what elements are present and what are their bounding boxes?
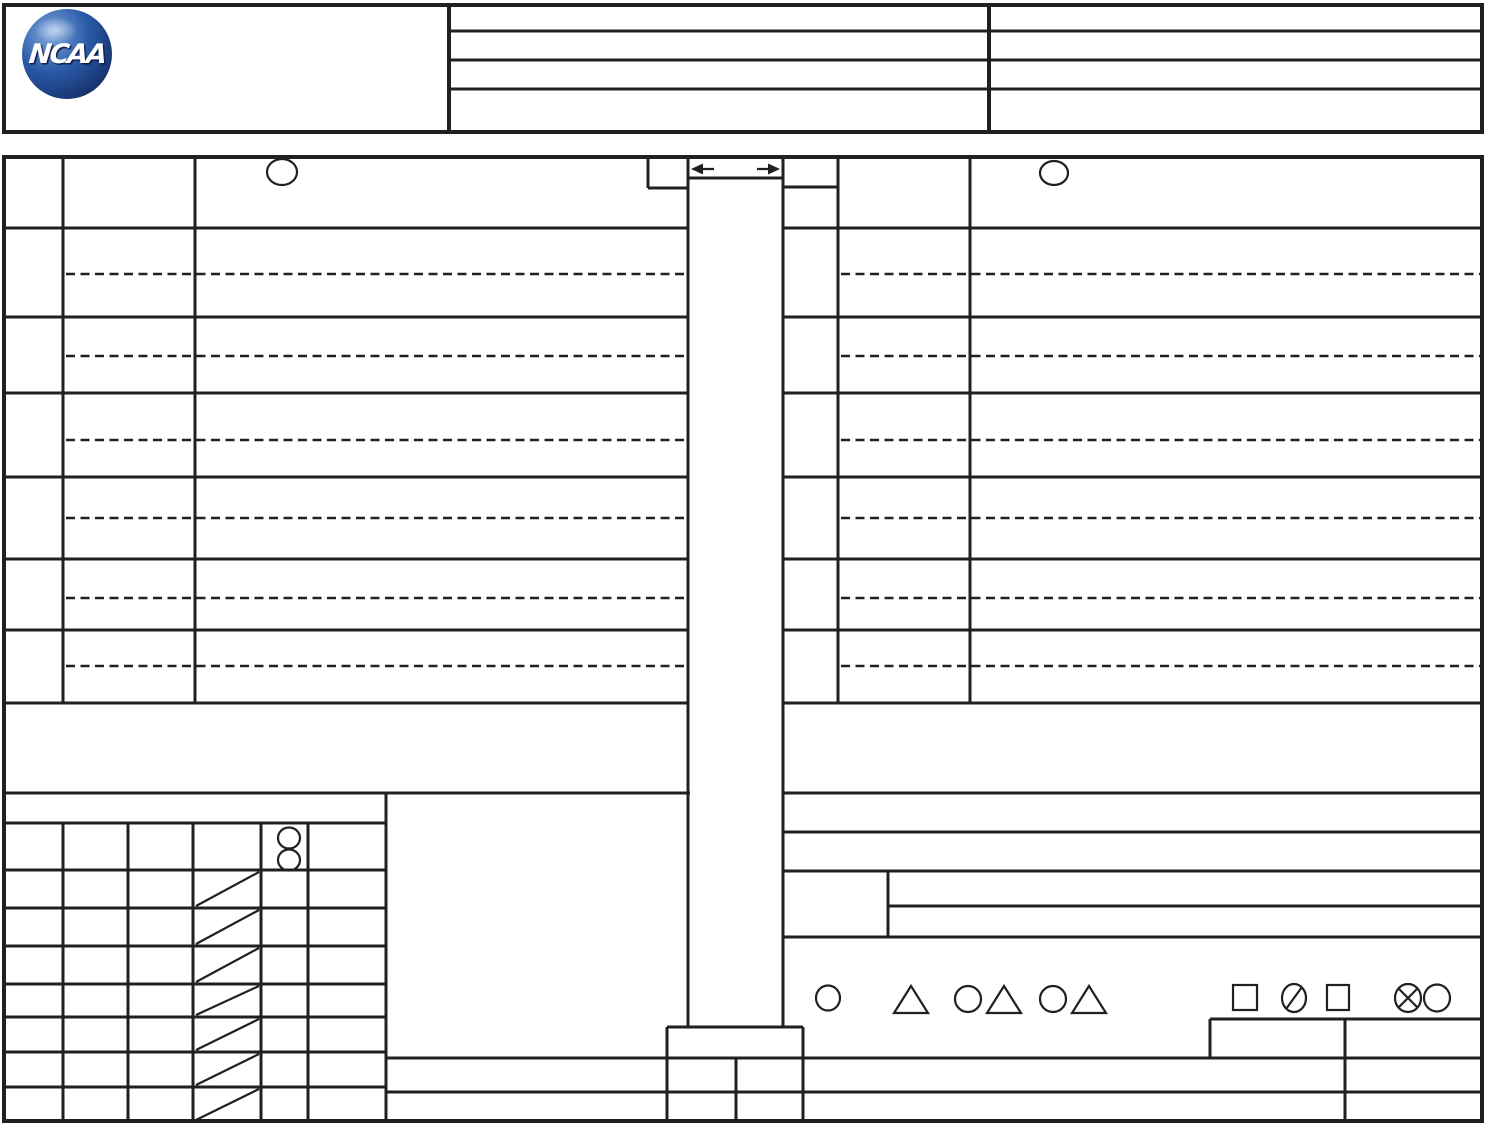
- right-header-circle-icon: [1040, 161, 1068, 185]
- left-arrow-icon: [691, 164, 714, 175]
- left-header-circle-icon: [267, 159, 297, 185]
- legend-circle-triangle-icon-2: [1040, 986, 1106, 1013]
- main-table-border: [4, 157, 1482, 1121]
- horizontal-rules: [3, 178, 1482, 1092]
- legend-square-icon-2: [1327, 985, 1349, 1010]
- dashed-substitution-lines-right: [841, 274, 1480, 666]
- header-info-table-right-grid: [989, 5, 1482, 132]
- right-arrow-icon: [757, 164, 780, 175]
- legend-circle-triangle-icon-1: [955, 986, 1021, 1013]
- header-info-table-middle-grid: [449, 5, 989, 132]
- vertical-rules: [63, 156, 1345, 1122]
- legend-triangle-icon: [894, 986, 928, 1013]
- header-logo-box-border: [4, 5, 449, 132]
- legend-slashed-circle-icon: [1282, 984, 1306, 1012]
- scoresheet-page: NCAA: [0, 0, 1485, 1126]
- legend-crossed-circle-with-circle-icon: [1395, 984, 1450, 1012]
- dashed-substitution-lines-left: [66, 274, 686, 666]
- legend-circle-icon: [816, 986, 840, 1011]
- legend-square-icon-1: [1233, 985, 1257, 1010]
- double-circle-icon: [278, 828, 300, 871]
